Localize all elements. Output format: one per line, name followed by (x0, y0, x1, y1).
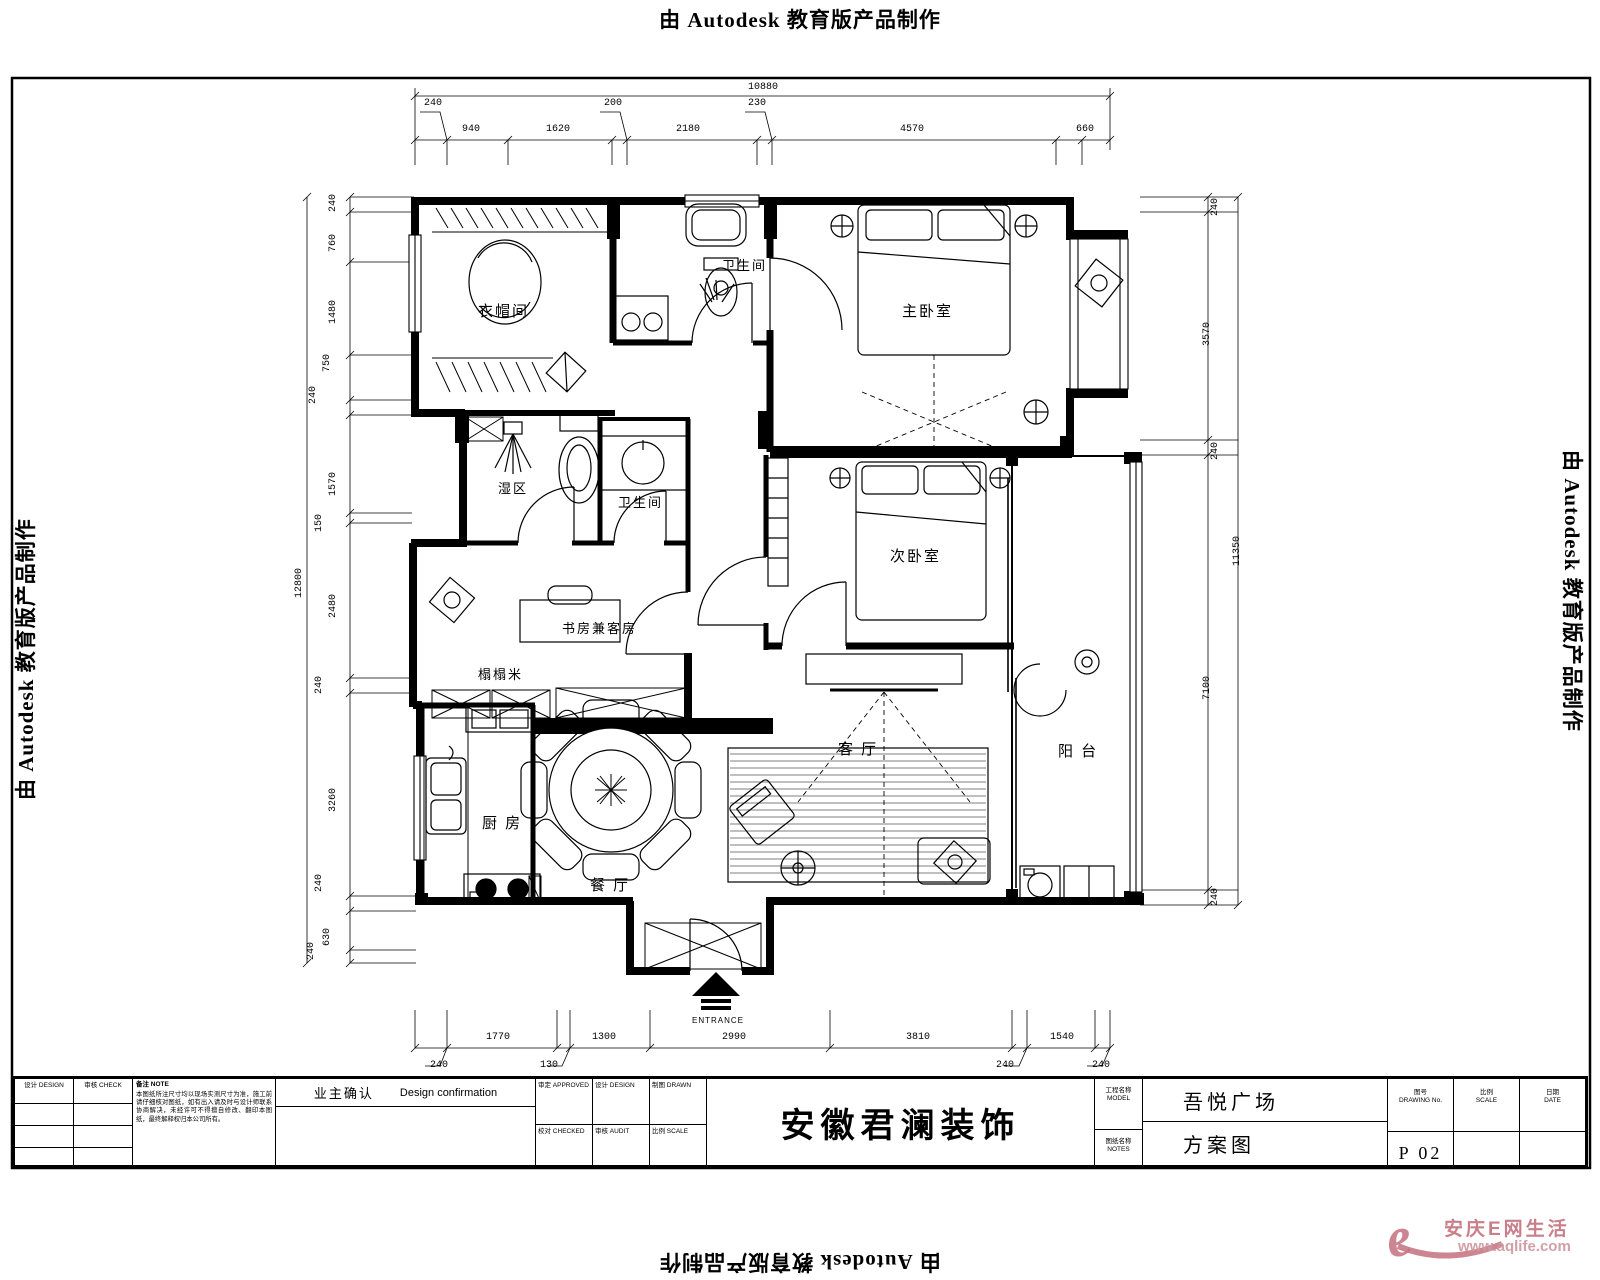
tb-owner-cn: 业主确认 (314, 1083, 374, 1102)
room-label-bath-top: 卫生间 (722, 255, 767, 274)
tb-company: 安徽君澜装饰 (707, 1079, 1095, 1165)
dim-left: 630 (322, 928, 333, 946)
doors (518, 258, 846, 971)
dim-bottom-seg: 3810 (906, 1032, 930, 1043)
tb-right-values: 吾悦广场 方案图 (1143, 1079, 1388, 1165)
tb-project-label-cn: 工程名称 (1098, 1087, 1139, 1095)
sheet-name: 方案图 (1183, 1129, 1255, 1158)
dim-bottom-seg: 1540 (1050, 1032, 1074, 1043)
tb-date: 日期 DATE (1520, 1079, 1585, 1165)
tb-owner-en: Design confirmation (400, 1087, 497, 1099)
dashed-lines (798, 355, 1006, 898)
tb-no-label-cn: 图号 (1390, 1089, 1451, 1097)
tb-date-label-en: DATE (1522, 1097, 1583, 1105)
dim-right: 240 (1210, 888, 1221, 906)
dim-top-seg: 2180 (676, 124, 700, 135)
tb-note-header: 备注 NOTE (133, 1079, 275, 1089)
page-number: P 02 (1399, 1143, 1443, 1164)
dim-bottom-off: 240 (430, 1060, 448, 1071)
dim-top-seg: 4570 (900, 124, 924, 135)
dim-left: 3260 (328, 788, 339, 812)
room-label-balcony: 阳 台 (1058, 740, 1098, 761)
tb-mid-col1: 审定 APPROVED 校对 CHECKED (536, 1079, 593, 1165)
autodesk-banner-bottom: 由 Autodesk 教育版产品制作 (0, 1248, 1600, 1278)
dim-bottom-seg: 2990 (722, 1032, 746, 1043)
tb-scale: 比例 SCALE (1454, 1079, 1520, 1165)
dim-left: 240 (328, 194, 339, 212)
company-name: 安徽君澜装饰 (781, 1098, 1021, 1147)
tb-project-label-en: MODEL (1098, 1095, 1139, 1103)
dim-left: 1480 (328, 300, 339, 324)
room-label-kitchen: 厨 房 (482, 812, 522, 833)
tb-note-body: 本图纸所注尺寸均以现场实测尺寸为准，施工前请仔细核对图纸，如有出入请及时与设计师… (133, 1089, 275, 1126)
room-label-wet-area: 湿区 (498, 478, 528, 497)
dim-left: 240 (314, 676, 325, 694)
dim-top-off: 240 (424, 98, 442, 109)
room-label-study-guest: 书房兼客房 (562, 618, 637, 637)
room-label-master-bedroom: 主卧室 (902, 300, 953, 321)
dim-right: 3570 (1202, 322, 1213, 346)
watermark-site-name: 安庆E网生活 (1444, 1214, 1570, 1241)
tb-owner: 业主确认 Design confirmation (276, 1079, 536, 1165)
dim-bottom-off: 130 (540, 1060, 558, 1071)
tb-mid-cell: 审定 APPROVED (536, 1079, 592, 1125)
tb-mid-cell: 比例 SCALE (650, 1125, 706, 1170)
title-block: 设计 DESIGN 审核 CHECK 备注 NOTE 本图纸所注尺寸均以现场实测… (12, 1076, 1588, 1168)
sheet-border (12, 78, 1590, 1168)
tb-mid-cell: 校对 CHECKED (536, 1125, 592, 1170)
tb-mid-cell: 设计 DESIGN (593, 1079, 649, 1125)
rug-stripes (730, 754, 986, 873)
dim-top-total: 10880 (748, 82, 778, 93)
autodesk-banner-left: 由 Autodesk 教育版产品制作 (10, 518, 40, 800)
watermark-url: www.aqlife.com (1458, 1238, 1571, 1255)
tb-dwgno: 图号 DRAWING No. P 02 (1388, 1079, 1454, 1165)
dim-top-off: 230 (748, 98, 766, 109)
entrance-arrow-icon (692, 972, 740, 1010)
dim-right: 240 (1210, 198, 1221, 216)
tb-mid-cell: 制图 DRAWN (650, 1079, 706, 1125)
dim-right: 7100 (1202, 676, 1213, 700)
entrance-label: ENTRANCE (692, 1016, 744, 1025)
room-label-second-bedroom: 次卧室 (890, 545, 941, 566)
dim-left: 150 (314, 514, 325, 532)
project-name: 吾悦广场 (1183, 1086, 1279, 1115)
tb-mid-col3: 制图 DRAWN 比例 SCALE (650, 1079, 707, 1165)
dim-right: 240 (1210, 442, 1221, 460)
dim-left: 2480 (328, 594, 339, 618)
tb-col-design: 设计 DESIGN (15, 1079, 74, 1165)
dim-left: 240 (314, 874, 325, 892)
dim-left: 240 (308, 386, 319, 404)
room-label-cloakroom: 衣帽间 (478, 300, 529, 321)
tb-sheet-label-en: NOTES (1098, 1146, 1139, 1154)
dim-left: 760 (328, 234, 339, 252)
dim-left-total: 12800 (294, 568, 305, 598)
autodesk-banner-right: 由 Autodesk 教育版产品制作 (1558, 450, 1588, 732)
room-label-tatami: 榻榻米 (478, 664, 523, 683)
dim-top-seg: 1620 (546, 124, 570, 135)
dim-left: 1570 (328, 472, 339, 496)
room-label-bath-mid: 卫生间 (618, 492, 663, 511)
tb-date-label-cn: 日期 (1522, 1089, 1583, 1097)
room-label-dining: 餐 厅 (590, 874, 630, 895)
tb-check-header: 审核 CHECK (74, 1079, 132, 1104)
tb-scale-label-cn: 比例 (1456, 1089, 1517, 1097)
dim-bottom-off: 240 (1092, 1060, 1110, 1071)
room-label-living: 客 厅 (838, 738, 878, 759)
tb-right-labels: 工程名称 MODEL 图纸名称 NOTES (1095, 1079, 1143, 1165)
tb-mid-cell: 审核 AUDIT (593, 1125, 649, 1170)
dim-left: 240 (306, 942, 317, 960)
tb-note: 备注 NOTE 本图纸所注尺寸均以现场实测尺寸为准，施工前请仔细核对图纸，如有出… (133, 1079, 276, 1165)
tb-scale-label-en: SCALE (1456, 1097, 1517, 1105)
dim-bottom-off: 240 (996, 1060, 1014, 1071)
dim-left: 750 (322, 354, 333, 372)
tb-design-header: 设计 DESIGN (15, 1079, 73, 1104)
autodesk-banner-top: 由 Autodesk 教育版产品制作 (0, 4, 1600, 34)
dim-top-seg: 660 (1076, 124, 1094, 135)
cad-floorplan-sheet: { "banner": { "text": "由 Autodesk 教育版产品制… (0, 0, 1600, 1280)
dim-bottom-seg: 1300 (592, 1032, 616, 1043)
dim-top-off: 200 (604, 98, 622, 109)
dim-top-seg: 940 (462, 124, 480, 135)
tb-no-label-en: DRAWING No. (1390, 1097, 1451, 1105)
tb-sheet-label-cn: 图纸名称 (1098, 1138, 1139, 1146)
dim-right-total: 11350 (1232, 536, 1243, 566)
tb-col-check: 审核 CHECK (74, 1079, 133, 1165)
tb-mid-col2: 设计 DESIGN 审核 AUDIT (593, 1079, 650, 1165)
dim-bottom-seg: 1770 (486, 1032, 510, 1043)
